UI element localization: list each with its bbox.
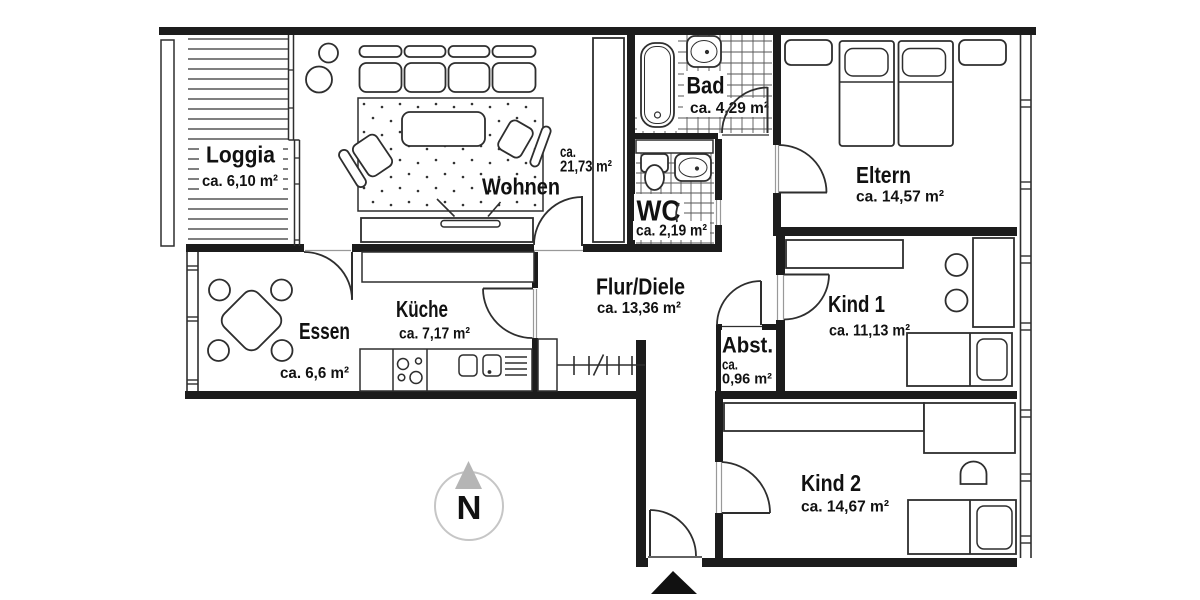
- svg-text:Bad: Bad: [687, 73, 725, 100]
- svg-text:ca. 14,57 m²: ca. 14,57 m²: [856, 189, 944, 206]
- svg-text:Küche: Küche: [396, 296, 448, 322]
- svg-text:21,73 m²: 21,73 m²: [560, 159, 612, 176]
- svg-text:Eltern: Eltern: [856, 162, 911, 188]
- svg-text:ca. 6,6 m²: ca. 6,6 m²: [280, 365, 349, 382]
- svg-text:Kind 1: Kind 1: [828, 291, 885, 317]
- svg-text:Essen: Essen: [299, 318, 350, 344]
- svg-text:Loggia: Loggia: [206, 142, 275, 168]
- svg-text:0,96 m²: 0,96 m²: [722, 371, 772, 388]
- svg-text:Flur/Diele: Flur/Diele: [596, 274, 685, 300]
- svg-text:ca. 11,13 m²: ca. 11,13 m²: [829, 323, 910, 340]
- svg-text:ca. 2,19 m²: ca. 2,19 m²: [636, 223, 707, 240]
- svg-text:ca. 13,36 m²: ca. 13,36 m²: [597, 300, 681, 317]
- svg-text:Kind 2: Kind 2: [801, 470, 861, 496]
- svg-text:Abst.: Abst.: [722, 333, 773, 358]
- svg-text:Wohnen: Wohnen: [482, 174, 560, 200]
- svg-text:ca. 6,10 m²: ca. 6,10 m²: [202, 173, 278, 190]
- svg-text:ca. 14,67 m²: ca. 14,67 m²: [801, 499, 889, 516]
- svg-text:ca. 7,17 m²: ca. 7,17 m²: [399, 326, 470, 343]
- svg-text:N: N: [457, 489, 482, 526]
